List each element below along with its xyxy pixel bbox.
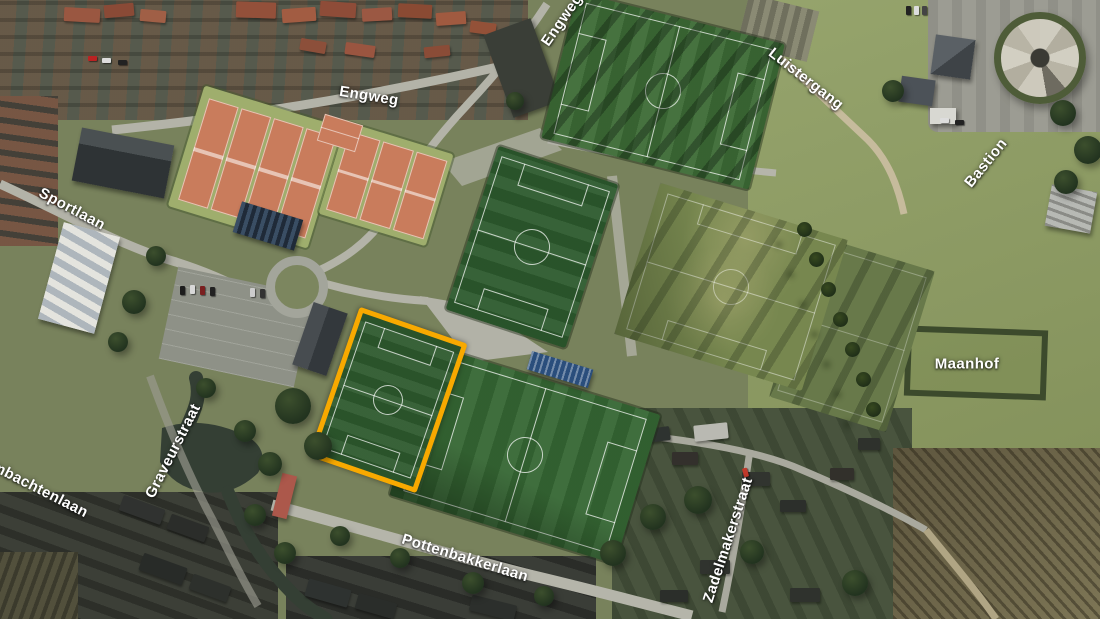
tree — [146, 246, 166, 266]
house-roof — [236, 1, 277, 18]
tree — [842, 570, 868, 596]
poplar-tree — [797, 222, 812, 237]
tree — [390, 548, 410, 568]
parked-car — [914, 6, 919, 15]
tree — [684, 486, 712, 514]
parked-car — [955, 120, 964, 125]
poplar-tree — [866, 402, 881, 417]
parked-car — [102, 58, 111, 63]
house-roof — [780, 500, 806, 512]
house-roof — [320, 1, 357, 18]
tree — [600, 540, 626, 566]
parked-car — [190, 285, 195, 294]
tree — [1050, 100, 1076, 126]
circular-building-rotunda — [994, 12, 1086, 104]
house-roof — [830, 468, 854, 480]
tree — [244, 504, 266, 526]
house-roof — [858, 438, 880, 450]
parked-car — [250, 288, 255, 297]
house-roof — [64, 7, 101, 23]
tree — [108, 332, 128, 352]
poplar-tree — [845, 342, 860, 357]
parked-car — [88, 56, 97, 61]
tree — [234, 420, 256, 442]
tree — [304, 432, 332, 460]
house-roof — [398, 3, 433, 19]
house-roof — [140, 9, 167, 23]
tree — [462, 572, 484, 594]
tree — [275, 388, 311, 424]
tree — [740, 540, 764, 564]
bastion-building — [930, 34, 975, 79]
tree — [882, 80, 904, 102]
parked-car — [200, 286, 205, 295]
house-roof — [282, 7, 317, 23]
house-roof — [700, 560, 730, 574]
house-roof — [672, 452, 698, 465]
road-bottom-right — [648, 436, 926, 530]
parked-car — [922, 6, 927, 15]
tree — [640, 504, 666, 530]
parked-car — [118, 60, 127, 65]
house-roof — [103, 3, 134, 19]
tree — [506, 92, 524, 110]
house-roof — [362, 7, 393, 22]
road-woods — [926, 530, 996, 619]
house-roof — [660, 590, 688, 602]
poplar-tree — [809, 252, 824, 267]
tree — [1054, 170, 1078, 194]
poplar-tree — [833, 312, 848, 327]
maanhof-hedge — [907, 329, 1045, 398]
tree — [196, 378, 216, 398]
poplar-tree — [821, 282, 836, 297]
parked-car — [260, 289, 265, 298]
house-roof — [436, 11, 467, 26]
tree — [1074, 136, 1100, 164]
tree — [274, 542, 296, 564]
tree — [122, 290, 146, 314]
parked-car — [210, 287, 215, 296]
tree — [534, 586, 554, 606]
aerial-map[interactable]: Engweg Engweg Sportlaan Luistergang Bast… — [0, 0, 1100, 619]
house-roof — [790, 588, 820, 602]
parked-car — [180, 286, 185, 295]
parked-car — [906, 6, 911, 15]
tree — [330, 526, 350, 546]
tree — [258, 452, 282, 476]
parked-car — [940, 118, 949, 123]
poplar-tree — [856, 372, 871, 387]
